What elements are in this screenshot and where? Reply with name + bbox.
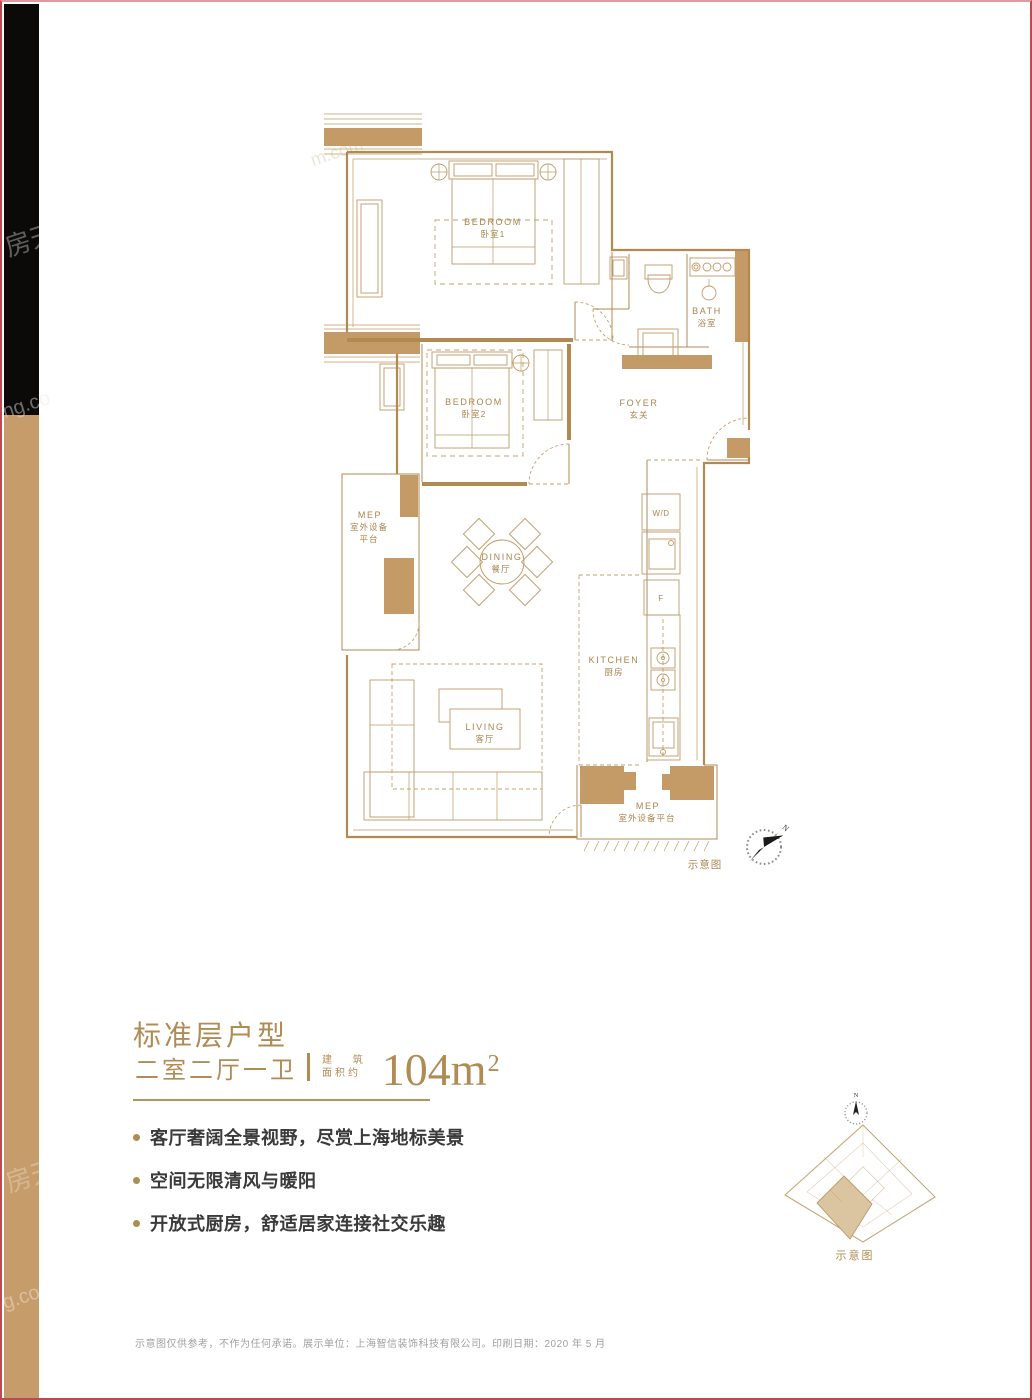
foyer-label-en: FOYER — [619, 398, 658, 408]
mep-left-label-cn2: 平台 — [359, 534, 378, 544]
dining-label-en: DINING — [481, 552, 522, 562]
bedroom2-label-cn: 卧室2 — [462, 409, 487, 419]
living-label-en: LIVING — [465, 722, 504, 732]
feature-list: 客厅奢阔全景视野，尽赏上海地标美景 空间无限清风与暖阳 开放式厨房，舒适居家连接… — [133, 1124, 465, 1253]
living-furniture: LIVING 客厅 — [364, 664, 542, 820]
keyplan-schematic-label: 示意图 — [836, 1248, 875, 1262]
feature-item: 客厅奢阔全景视野，尽赏上海地标美景 — [133, 1124, 465, 1150]
feature-text: 开放式厨房，舒适居家连接社交乐趣 — [150, 1210, 446, 1236]
keyplan-compass-n: N — [854, 1092, 859, 1099]
left-black-bar — [4, 4, 39, 415]
washer-dryer-label: W/D — [652, 509, 669, 518]
bedroom2-label-en: BEDROOM — [445, 397, 503, 407]
room-label-foyer: FOYER 玄关 — [619, 398, 658, 420]
area-qualifier: 建 筑 面积约 — [322, 1054, 372, 1080]
layout-summary: 二室二厅一卫 建 筑 面积约 104m2 — [135, 1044, 500, 1090]
mep-left: MEP 室外设备 平台 — [350, 510, 388, 544]
area-value: 104m2 — [382, 1044, 500, 1090]
room-label-bath: BATH 浴室 — [692, 306, 722, 328]
bullet-icon — [133, 1220, 140, 1227]
kitchen-fixtures: W/D F — [579, 494, 680, 765]
mep-left-label-en: MEP — [358, 510, 382, 520]
plan-compass-icon: N — [747, 823, 791, 864]
plan-schematic-label: 示意图 — [688, 858, 723, 871]
mep-bottom: MEP 室外设备平台 — [584, 801, 709, 851]
key-plan: N 示意图 — [772, 1087, 962, 1277]
window-details — [324, 114, 627, 410]
dining-label-cn: 餐厅 — [491, 564, 510, 574]
divider — [307, 1053, 310, 1081]
feature-item: 空间无限清风与暖阳 — [133, 1167, 465, 1193]
mep-left-label-cn1: 室外设备 — [350, 522, 388, 532]
bedroom1-label-en: BEDROOM — [464, 217, 522, 227]
keyplan-compass-icon: N — [845, 1092, 867, 1124]
living-label-cn: 客厅 — [475, 734, 494, 744]
structural-walls — [324, 128, 750, 804]
page: 房天 ng.co 房天下 g.com m.com — [0, 0, 1032, 1400]
layout-text: 二室二厅一卫 — [135, 1050, 297, 1085]
foyer-label-cn: 玄关 — [629, 410, 648, 420]
keyplan-building — [785, 1125, 935, 1242]
bedroom1-label-cn: 卧室1 — [481, 229, 506, 239]
bullet-icon — [133, 1177, 140, 1184]
room-label-kitchen: KITCHEN 厨房 — [589, 655, 640, 677]
mep-bottom-label-cn: 室外设备平台 — [618, 813, 675, 823]
mep-bottom-label-en: MEP — [636, 801, 660, 811]
left-gold-bar — [4, 415, 39, 1400]
floor-plan: BEDROOM 卧室1 BEDROOM 卧室2 — [297, 97, 797, 897]
area-superscript: 2 — [488, 1051, 500, 1077]
bath-label-en: BATH — [692, 306, 722, 316]
bullet-icon — [133, 1134, 140, 1141]
area-qualifier-line2: 面积约 — [322, 1067, 372, 1080]
feature-text: 客厅奢阔全景视野，尽赏上海地标美景 — [150, 1124, 465, 1150]
fridge-label: F — [658, 594, 663, 603]
feature-text: 空间无限清风与暖阳 — [150, 1167, 317, 1193]
area-number: 104m — [382, 1044, 487, 1095]
gold-divider-rule — [133, 1099, 430, 1101]
area-qualifier-line1: 建 筑 — [322, 1054, 372, 1067]
plan-compass-n: N — [781, 823, 791, 834]
kitchen-label-cn: 厨房 — [604, 667, 623, 677]
room-label-bedroom2: BEDROOM 卧室2 — [445, 397, 503, 419]
feature-item: 开放式厨房，舒适居家连接社交乐趣 — [133, 1210, 465, 1236]
disclaimer: 示意图仅供参考，不作为任何承诺。展示单位：上海智信装饰科技有限公司。印刷日期：2… — [135, 1335, 606, 1350]
dining-set: DINING 餐厅 — [451, 518, 552, 605]
kitchen-label-en: KITCHEN — [589, 655, 640, 665]
bath-label-cn: 浴室 — [697, 318, 716, 328]
